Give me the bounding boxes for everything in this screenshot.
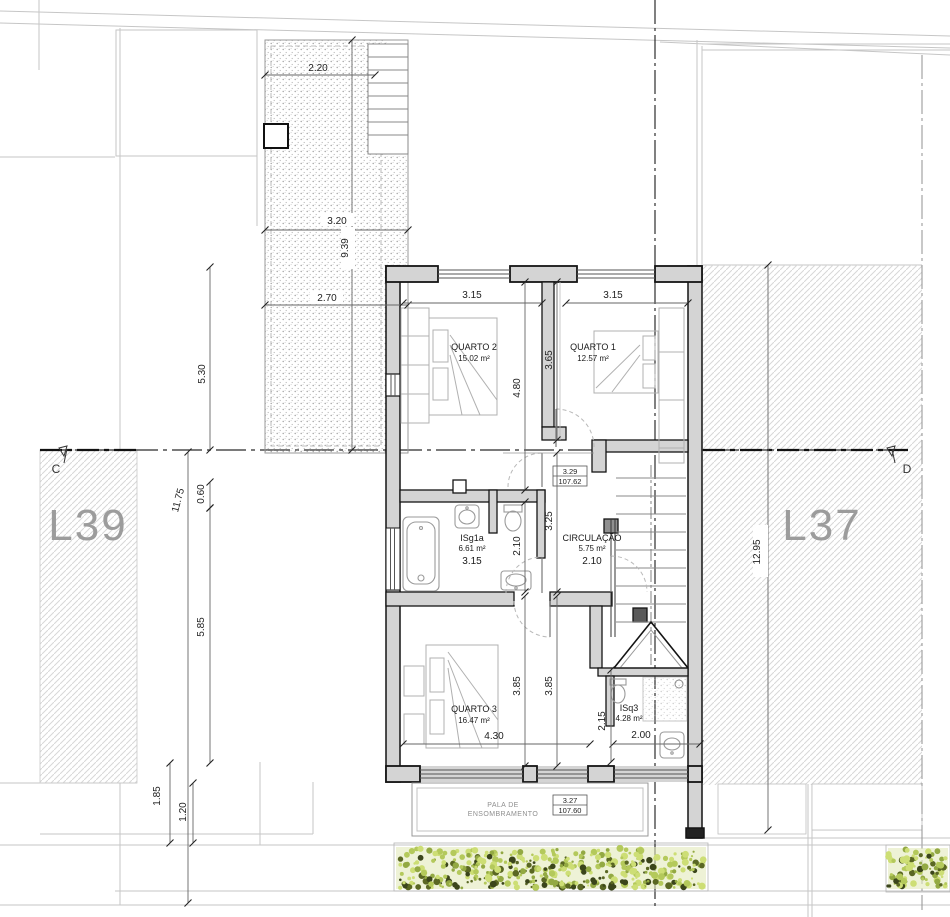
window-bath-left [386, 528, 400, 590]
floorplan-page: L39 L37 C D [0, 0, 950, 917]
level-box-upper: 3.29 107.62 [553, 466, 587, 486]
circulacao-name: CIRCULAÇÃO [562, 533, 621, 543]
floor-plan-canvas: L39 L37 C D [0, 0, 950, 917]
dim-bath-depth: 2.10 [512, 536, 523, 556]
level-box-canopy: 3.27 107.60 [553, 795, 587, 815]
dim-left-upper: 5.30 [197, 364, 208, 384]
dim-left-b1: 1.85 [152, 786, 163, 806]
isg1a-width: 3.15 [462, 556, 482, 567]
quarto3-name: QUARTO 3 [451, 704, 497, 714]
dim-q2-depth: 4.80 [512, 378, 523, 398]
hedge-vegetation [396, 845, 948, 891]
washbasin-isq3 [660, 732, 684, 758]
quarto1-area: 12.57 m² [577, 354, 609, 363]
dim-terrace-w3: 2.70 [317, 293, 337, 304]
toilet-isg1a [504, 505, 522, 531]
level-canopy-value: 3.27 [563, 796, 578, 805]
level-upper-datum: 107.62 [559, 477, 582, 486]
bathtub [403, 517, 439, 591]
lot-l39-hatch [40, 450, 137, 783]
room-label-isg1a: ISg1a 6.61 m² 3.15 [458, 533, 485, 567]
section-letter-c: C [52, 462, 61, 476]
circulacao-area: 5.75 m² [578, 544, 605, 553]
dim-q3-depth-a: 3.85 [512, 676, 523, 696]
staircase [611, 465, 688, 668]
corner-column [633, 608, 647, 622]
isg1a-name: ISg1a [460, 533, 484, 543]
pala-canopy [412, 783, 648, 836]
furniture-quarto2 [401, 308, 497, 423]
quarto3-area: 16.47 m² [458, 716, 490, 725]
isg1a-area: 6.61 m² [458, 544, 485, 553]
dim-q3-depth-b: 3.85 [544, 676, 555, 696]
dim-terrace-w2: 3.20 [327, 216, 347, 227]
dim-isq3-depth: 2.15 [597, 711, 608, 731]
dim-right-depth: 12.95 [752, 539, 763, 564]
dim-left-total: 11.75 [170, 487, 187, 514]
terrace-slats [368, 44, 408, 154]
room-label-quarto3: QUARTO 3 16.47 m² [451, 704, 497, 725]
dim-left-small: 0.60 [196, 484, 207, 504]
dim-q1-width: 3.15 [603, 290, 623, 301]
circulacao-width: 2.10 [582, 556, 602, 567]
duct-column [453, 480, 466, 493]
room-label-quarto2: QUARTO 2 15.02 m² [451, 342, 497, 363]
pala-label-line1: PALA DE [487, 802, 518, 809]
terrace-duct [264, 124, 288, 148]
room-label-quarto1: QUARTO 1 12.57 m² [570, 342, 616, 363]
dim-isq3-width: 2.00 [631, 730, 651, 741]
lot-label-l39: L39 [48, 501, 127, 550]
dim-left-lower: 5.85 [196, 617, 207, 637]
dim-terrace-depth: 9.39 [340, 238, 351, 258]
level-upper-value: 3.29 [563, 467, 578, 476]
isq3-area: 4.28 m² [615, 714, 642, 723]
room-label-circulacao: CIRCULAÇÃO 5.75 m² 2.10 [562, 533, 621, 567]
section-letter-d: D [903, 462, 912, 476]
dim-q3-width: 4.30 [484, 731, 504, 742]
dim-q2-width: 3.15 [462, 290, 482, 301]
level-canopy-datum: 107.60 [559, 806, 582, 815]
isq3-name: ISq3 [620, 703, 639, 713]
lot-label-l37: L37 [782, 501, 861, 550]
dim-corridor-depth: 3.25 [544, 511, 555, 531]
window-q2-left [386, 374, 400, 396]
room-label-isq3: ISq3 4.28 m² [615, 703, 642, 723]
dim-left-b2: 1.20 [178, 802, 189, 822]
shower-isq3 [643, 677, 687, 721]
pala-label-line2: ENSOMBRAMENTO [468, 811, 539, 818]
dim-q1-depth: 3.65 [544, 350, 555, 370]
washbasin-1 [455, 505, 479, 528]
quarto2-name: QUARTO 2 [451, 342, 497, 352]
dim-terrace-w1: 2.20 [308, 63, 328, 74]
quarto1-name: QUARTO 1 [570, 342, 616, 352]
quarto2-area: 15.02 m² [458, 354, 490, 363]
washbasin-2 [501, 571, 531, 590]
